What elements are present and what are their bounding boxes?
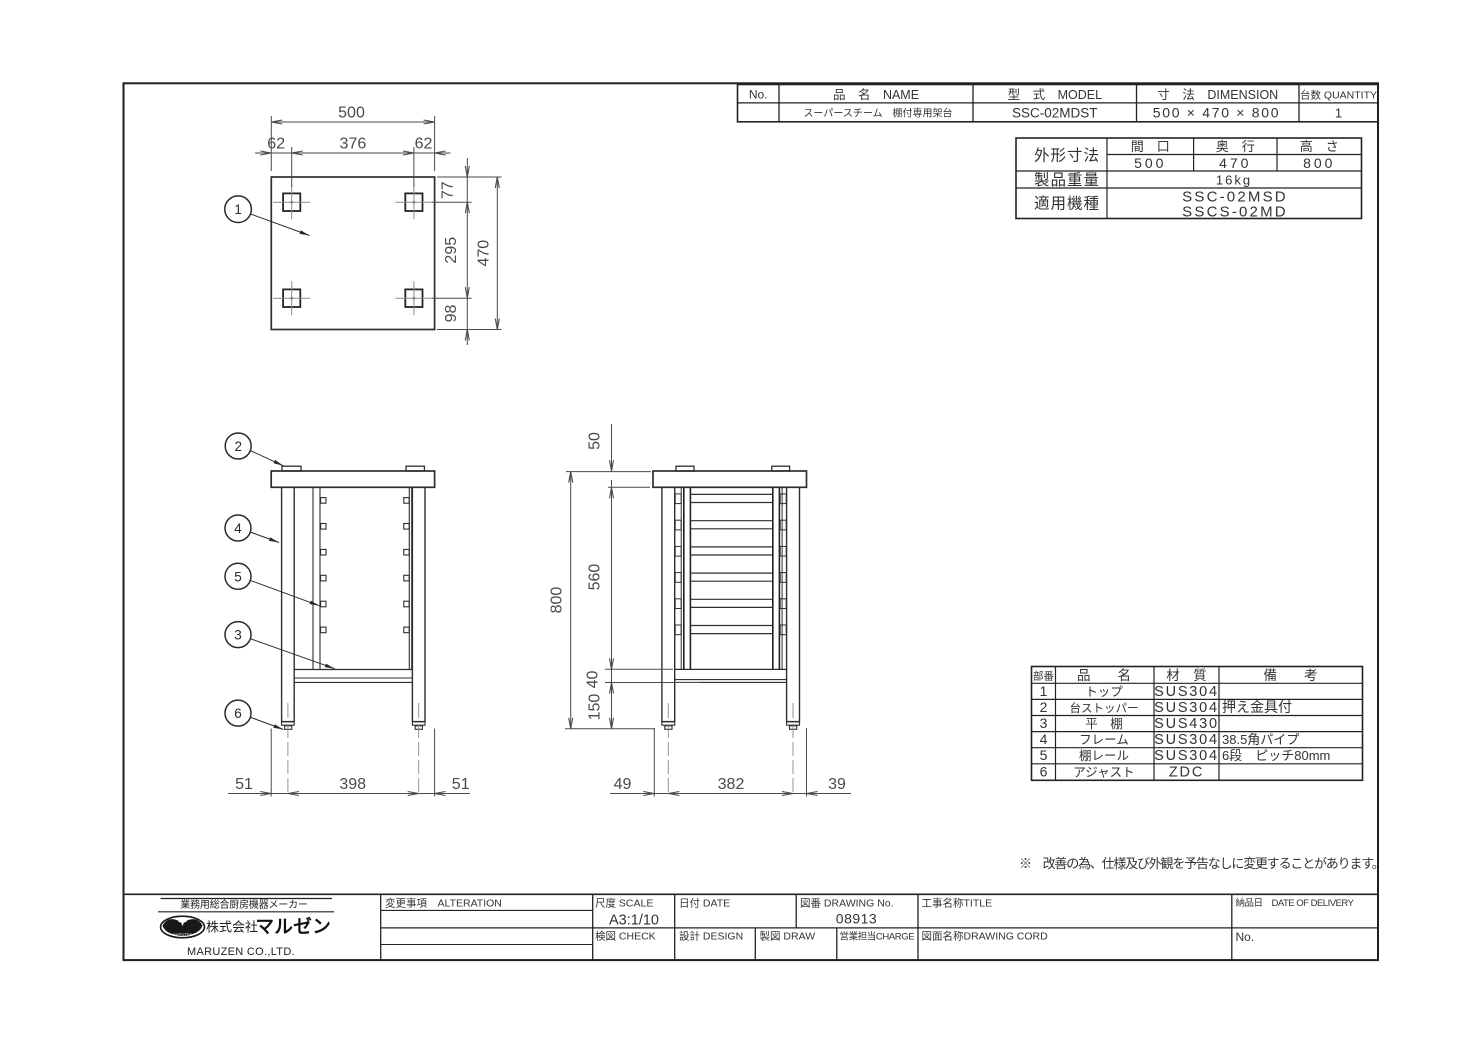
svg-text:1: 1 [1335,105,1342,120]
svg-text:150: 150 [587,694,604,721]
svg-text:398: 398 [339,776,366,793]
svg-text:製図 DRAW: 製図 DRAW [760,930,816,943]
svg-text:奥 行: 奥 行 [1216,139,1255,154]
svg-text:尺度 SCALE: 尺度 SCALE [595,897,653,910]
svg-text:6段 ピッチ80mm: 6段 ピッチ80mm [1222,748,1330,763]
svg-text:3: 3 [1040,715,1048,731]
svg-text:98: 98 [443,305,460,323]
svg-text:外形寸法: 外形寸法 [1034,147,1100,165]
svg-text:470: 470 [476,240,493,267]
svg-text:※ 改善の為、仕様及び外観を予告なしに変更することがあります: ※ 改善の為、仕様及び外観を予告なしに変更することがあります。 [1019,856,1384,871]
svg-text:品 名 NAME: 品 名 NAME [833,87,919,102]
svg-text:51: 51 [452,776,470,793]
svg-text:SUS304: SUS304 [1154,684,1219,700]
svg-text:SUS304: SUS304 [1154,748,1219,764]
svg-text:800: 800 [1303,155,1335,171]
svg-text:アジャスト: アジャスト [1073,765,1134,779]
svg-text:500 × 470 × 800: 500 × 470 × 800 [1153,104,1281,120]
svg-text:高 さ: 高 さ [1300,139,1339,154]
svg-text:設計 DESIGN: 設計 DESIGN [679,930,743,943]
svg-text:62: 62 [267,136,285,153]
svg-text:型 式 MODEL: 型 式 MODEL [1008,88,1103,102]
svg-text:SUS304: SUS304 [1154,732,1219,748]
svg-text:50: 50 [587,432,604,450]
svg-text:2: 2 [234,439,242,454]
svg-text:寸 法 DIMENSION: 寸 法 DIMENSION [1157,88,1278,102]
svg-text:棚レール: 棚レール [1079,748,1129,763]
svg-text:376: 376 [340,136,367,153]
svg-text:スーパースチーム 棚付専用架台: スーパースチーム 棚付専用架台 [803,107,952,120]
svg-text:適用機種: 適用機種 [1034,195,1100,213]
svg-text:560: 560 [587,564,604,591]
svg-text:4: 4 [1040,731,1048,747]
svg-text:16kg: 16kg [1216,173,1252,188]
svg-text:1: 1 [234,202,242,217]
svg-text:5: 5 [234,569,242,584]
svg-text:マルゼン: マルゼン [256,916,332,937]
svg-text:図面名称DRAWING CORD: 図面名称DRAWING CORD [922,930,1049,943]
svg-text:77: 77 [440,181,457,199]
svg-text:業務用総合厨房機器メーカー: 業務用総合厨房機器メーカー [180,898,307,911]
svg-text:500: 500 [1134,155,1166,171]
svg-text:変更事項 ALTERATION: 変更事項 ALTERATION [385,897,502,910]
svg-text:38.5角パイプ: 38.5角パイプ [1222,732,1299,747]
svg-text:40: 40 [585,671,602,689]
svg-text:1: 1 [1040,683,1048,699]
svg-text:470: 470 [1219,155,1251,171]
svg-text:台数 QUANTITY: 台数 QUANTITY [1300,89,1377,102]
svg-text:MARUZEN: MARUZEN [173,933,193,937]
svg-text:SSCS-02MD: SSCS-02MD [1182,204,1288,221]
svg-text:部番: 部番 [1033,670,1055,683]
svg-text:図番 DRAWING No.: 図番 DRAWING No. [800,898,894,910]
svg-text:検図 CHECK: 検図 CHECK [595,930,656,943]
svg-text:382: 382 [718,776,745,793]
svg-text:製品重量: 製品重量 [1034,171,1100,189]
svg-text:間 口: 間 口 [1131,139,1170,154]
svg-text:6: 6 [234,706,242,721]
svg-text:平 棚: 平 棚 [1085,716,1123,731]
svg-text:39: 39 [828,776,846,793]
svg-text:MARUZEN CO.,LTD.: MARUZEN CO.,LTD. [187,946,295,958]
svg-text:A3:1/10: A3:1/10 [609,913,659,929]
svg-text:6: 6 [1040,763,1048,779]
svg-text:3: 3 [234,628,242,643]
svg-text:08913: 08913 [836,911,877,927]
svg-text:営業担当CHARGE: 営業担当CHARGE [840,931,915,943]
svg-text:800: 800 [549,587,566,614]
svg-text:No.: No. [1236,930,1255,944]
svg-text:株式会社: 株式会社 [206,920,258,935]
svg-text:500: 500 [338,105,365,122]
svg-text:ZDC: ZDC [1169,764,1204,780]
svg-text:51: 51 [235,776,253,793]
svg-text:日付 DATE: 日付 DATE [679,897,730,910]
svg-text:No.: No. [749,88,768,102]
svg-text:SSC-02MDST: SSC-02MDST [1012,105,1098,120]
svg-text:押え金具付: 押え金具付 [1222,699,1292,715]
svg-text:5: 5 [1040,747,1048,763]
svg-text:SUS430: SUS430 [1154,716,1219,732]
svg-text:材 質: 材 質 [1166,668,1207,683]
svg-text:2: 2 [1040,699,1048,715]
svg-text:49: 49 [614,776,632,793]
svg-text:295: 295 [443,237,460,264]
svg-text:トップ: トップ [1085,685,1123,699]
svg-text:台ストッパー: 台ストッパー [1070,701,1139,715]
svg-text:62: 62 [415,136,433,153]
svg-text:工事名称TITLE: 工事名称TITLE [922,897,993,910]
svg-text:フレーム: フレーム [1079,733,1129,747]
svg-text:品 名: 品 名 [1077,668,1131,683]
svg-text:納品日 DATE OF DELIVERY: 納品日 DATE OF DELIVERY [1236,897,1355,909]
svg-text:備 考: 備 考 [1264,668,1318,683]
svg-text:SUS304: SUS304 [1154,700,1219,716]
svg-text:4: 4 [234,521,242,536]
